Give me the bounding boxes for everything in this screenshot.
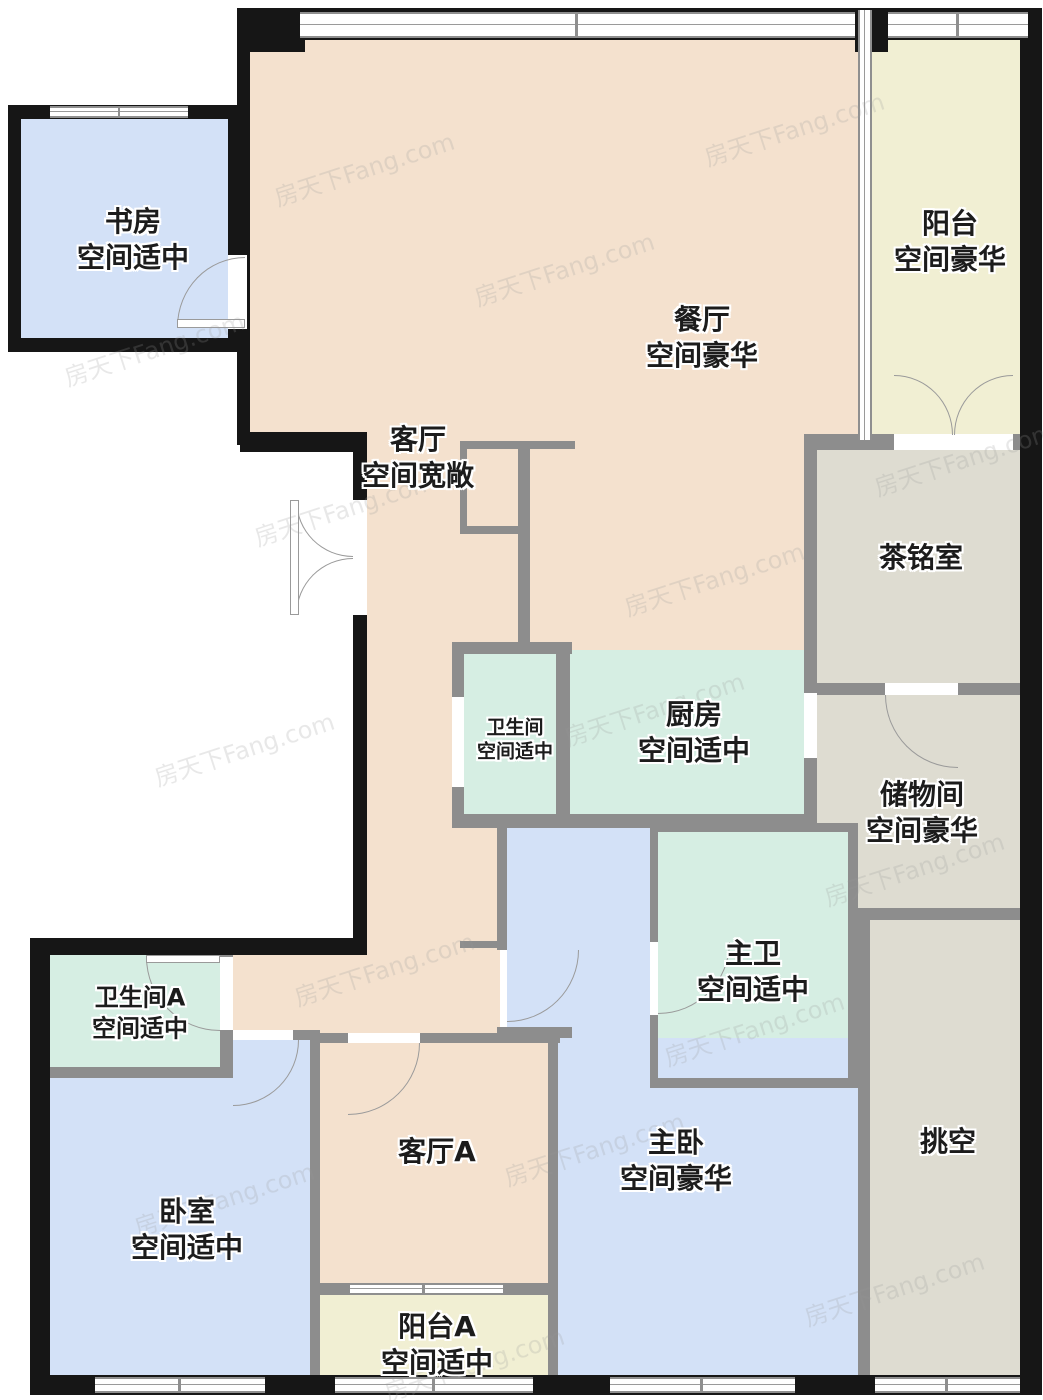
room-label-balcony-a: 阳台A 空间适中 bbox=[381, 1309, 493, 1381]
room-label-living: 客厅 空间宽敞 bbox=[362, 422, 474, 494]
room-fill-dining-living bbox=[250, 20, 858, 445]
wall-segment bbox=[353, 615, 367, 938]
room-name: 餐厅 bbox=[646, 302, 758, 338]
room-name: 卫生间A bbox=[92, 982, 188, 1013]
floor-plan: 房天下Fang.com 房天下Fang.com 房天下Fang.com 房天下F… bbox=[0, 0, 1043, 1400]
door-arc bbox=[296, 500, 353, 557]
window-mullion bbox=[956, 12, 959, 38]
room-label-tea-room: 茶铭室 bbox=[879, 540, 963, 576]
room-size: 空间适中 bbox=[381, 1345, 493, 1381]
room-name: 书房 bbox=[77, 204, 189, 240]
wall-segment bbox=[460, 441, 575, 449]
door-leaf bbox=[290, 500, 299, 615]
door-leaf bbox=[146, 955, 220, 963]
window-mullion bbox=[422, 1283, 425, 1295]
wall-segment bbox=[848, 823, 858, 1088]
wall-segment bbox=[452, 642, 572, 654]
wall-segment bbox=[556, 642, 570, 827]
room-label-bathroom: 卫生间 空间适中 bbox=[477, 716, 553, 765]
wall-segment bbox=[50, 1067, 233, 1078]
room-label-balcony: 阳台 空间豪华 bbox=[894, 206, 1006, 278]
room-name: 卫生间 bbox=[477, 716, 553, 740]
wall-segment bbox=[228, 327, 247, 352]
room-size: 空间适中 bbox=[477, 740, 553, 764]
room-name: 主卫 bbox=[697, 936, 809, 972]
room-name: 卧室 bbox=[131, 1194, 243, 1230]
door-opening bbox=[885, 683, 958, 695]
wall-segment bbox=[497, 828, 507, 950]
room-size: 空间宽敞 bbox=[362, 458, 474, 494]
door-opening bbox=[348, 1033, 420, 1043]
watermark: 房天下Fang.com bbox=[149, 702, 338, 793]
room-label-study: 书房 空间适中 bbox=[77, 204, 189, 276]
wall-segment bbox=[310, 1030, 320, 1375]
room-name: 挑空 bbox=[920, 1124, 976, 1160]
window bbox=[350, 1283, 503, 1295]
wall-segment bbox=[8, 105, 21, 352]
room-name: 阳台A bbox=[381, 1309, 493, 1345]
room-label-kitchen: 厨房 空间适中 bbox=[638, 697, 750, 769]
wall-segment bbox=[8, 338, 247, 352]
room-size: 空间豪华 bbox=[620, 1161, 732, 1197]
window-mullion bbox=[945, 1377, 948, 1393]
wall-segment bbox=[804, 438, 817, 824]
wall-segment bbox=[1020, 8, 1042, 1395]
room-label-bathroom-a: 卫生间A 空间适中 bbox=[92, 982, 188, 1043]
room-size: 空间适中 bbox=[92, 1013, 188, 1044]
room-name: 客厅A bbox=[398, 1134, 476, 1170]
door-arc bbox=[296, 558, 353, 615]
wall-segment bbox=[460, 526, 518, 534]
wall-segment bbox=[518, 449, 530, 647]
room-size: 空间豪华 bbox=[894, 242, 1006, 278]
room-size: 空间适中 bbox=[77, 240, 189, 276]
door-leaf bbox=[177, 319, 245, 328]
room-name: 主卧 bbox=[620, 1125, 732, 1161]
room-name: 储物间 bbox=[866, 777, 978, 813]
wall-segment bbox=[228, 105, 247, 257]
room-size: 空间豪华 bbox=[866, 813, 978, 849]
door-opening bbox=[233, 1030, 293, 1040]
room-name: 阳台 bbox=[894, 206, 1006, 242]
room-name: 茶铭室 bbox=[879, 540, 963, 576]
room-label-void: 挑空 bbox=[920, 1124, 976, 1160]
door-opening bbox=[353, 500, 367, 615]
room-label-living-a: 客厅A bbox=[398, 1134, 476, 1170]
wall-segment bbox=[240, 432, 367, 452]
window-mullion bbox=[700, 1377, 703, 1393]
wall-segment bbox=[460, 941, 497, 948]
door-opening bbox=[804, 693, 817, 758]
wall-segment bbox=[858, 918, 870, 1375]
wall-segment bbox=[548, 1033, 558, 1375]
room-size: 空间豪华 bbox=[646, 338, 758, 374]
room-label-dining: 餐厅 空间豪华 bbox=[646, 302, 758, 374]
room-fill-hallway-2 bbox=[367, 824, 500, 955]
room-size: 空间适中 bbox=[638, 733, 750, 769]
door-opening bbox=[894, 434, 1013, 450]
room-fill-hallway-3 bbox=[233, 948, 500, 1038]
wall-segment bbox=[30, 938, 367, 955]
window-mullion bbox=[178, 1377, 181, 1393]
room-name: 厨房 bbox=[638, 697, 750, 733]
room-name: 客厅 bbox=[362, 422, 474, 458]
wall-segment bbox=[848, 908, 1022, 920]
door-opening bbox=[220, 957, 233, 1030]
window-mullion bbox=[118, 106, 120, 118]
room-size: 空间适中 bbox=[697, 972, 809, 1008]
window-mullion bbox=[575, 12, 578, 38]
wall-segment bbox=[650, 823, 858, 832]
room-label-bedroom: 卧室 空间适中 bbox=[131, 1194, 243, 1266]
wall-segment bbox=[650, 1078, 858, 1088]
room-size: 空间适中 bbox=[131, 1230, 243, 1266]
room-fill-master-bedroom bbox=[558, 1038, 858, 1375]
door-opening bbox=[650, 942, 658, 1015]
room-label-master-bedroom: 主卧 空间豪华 bbox=[620, 1125, 732, 1197]
wall-segment bbox=[30, 938, 50, 1395]
room-label-master-bath: 主卫 空间适中 bbox=[697, 936, 809, 1008]
door-opening bbox=[452, 697, 464, 787]
glass-partition bbox=[858, 10, 872, 440]
room-label-storage: 储物间 空间豪华 bbox=[866, 777, 978, 849]
room-fill-hallway-1 bbox=[367, 650, 457, 824]
